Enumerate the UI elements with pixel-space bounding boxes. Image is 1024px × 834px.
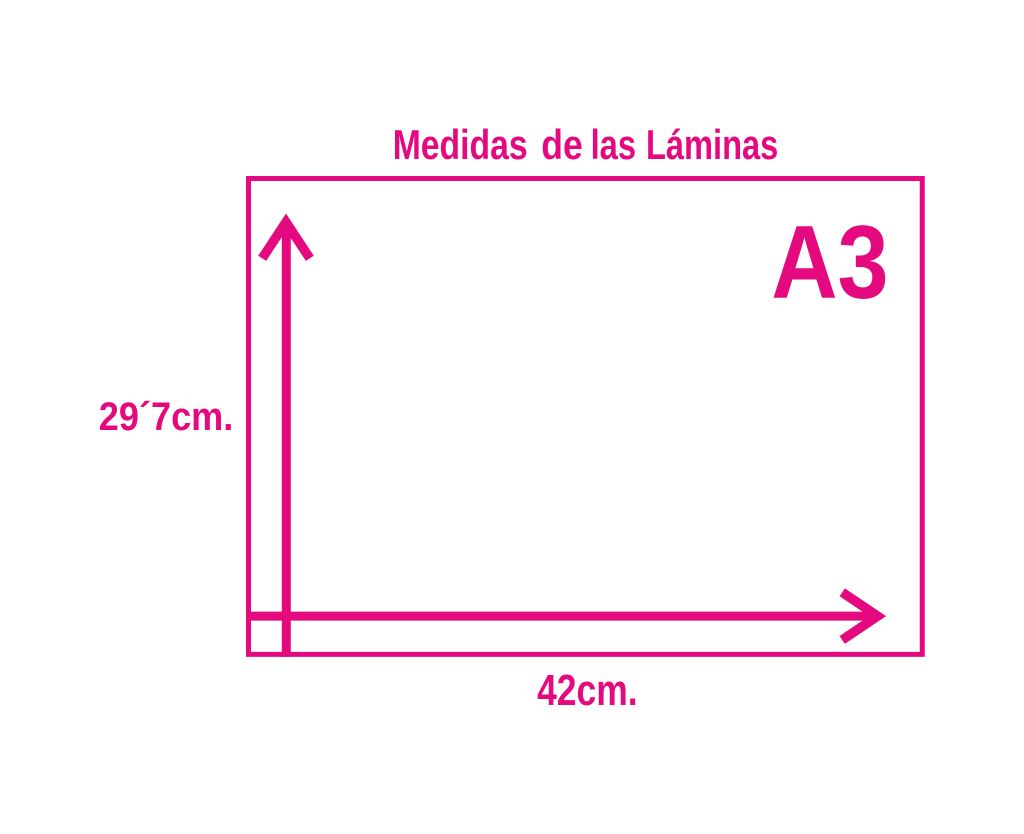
svg-text:de: de: [541, 121, 583, 168]
svg-text:29´7cm.: 29´7cm.: [99, 395, 234, 439]
svg-text:Medidas: Medidas: [393, 121, 528, 168]
svg-text:42cm.: 42cm.: [537, 667, 638, 715]
svg-text:A3: A3: [771, 204, 888, 320]
svg-text:Láminas: Láminas: [646, 121, 778, 168]
svg-text:las: las: [591, 121, 637, 168]
